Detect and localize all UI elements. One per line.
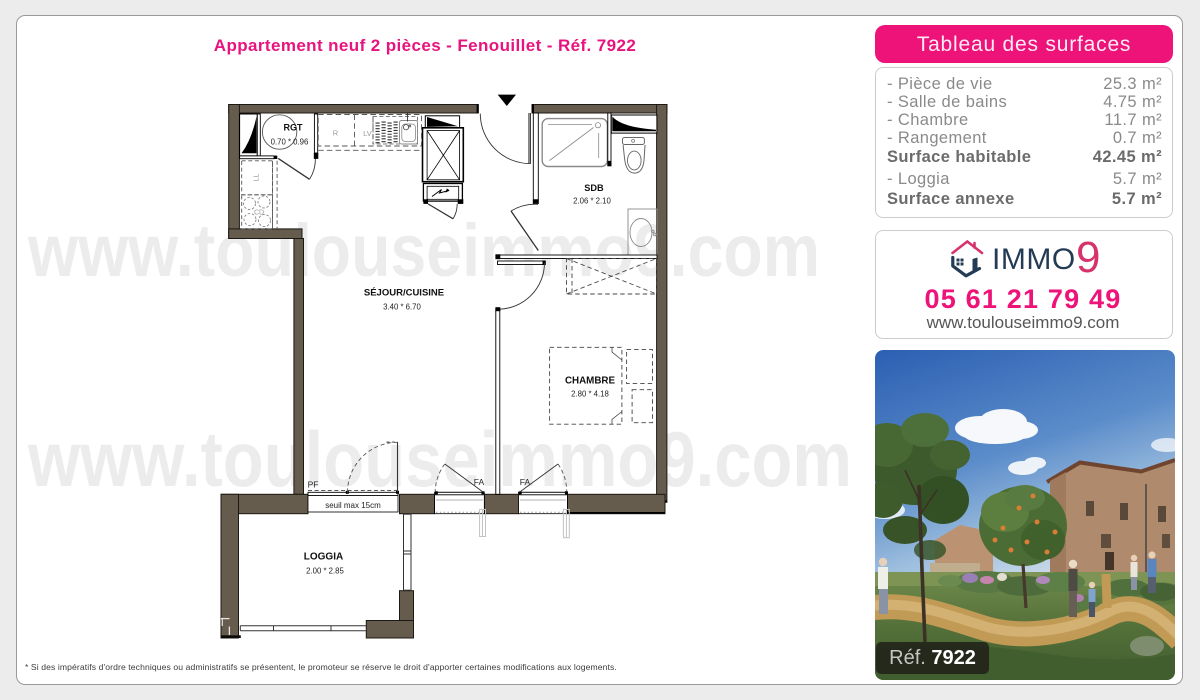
svg-text:2.00 * 2.85: 2.00 * 2.85 (306, 567, 344, 576)
svg-text:SÉJOUR/CUISINE: SÉJOUR/CUISINE (364, 288, 444, 299)
svg-text:CHAMBRE: CHAMBRE (565, 376, 616, 387)
svg-text:LOGGIA: LOGGIA (304, 552, 343, 563)
svg-text:SDB: SDB (584, 183, 604, 193)
svg-text:LV: LV (363, 129, 372, 138)
svg-text:RGT: RGT (284, 123, 304, 133)
svg-text:LL: LL (254, 174, 261, 182)
svg-text:0.70 * 0.96: 0.70 * 0.96 (271, 138, 309, 147)
svg-text:9: 9 (1076, 233, 1100, 282)
svg-text:seuil max 15cm: seuil max 15cm (325, 501, 381, 510)
svg-text:R: R (333, 129, 339, 138)
svg-text:3.40 * 6.70: 3.40 * 6.70 (383, 303, 421, 312)
svg-text:2.06 * 2.10: 2.06 * 2.10 (573, 197, 611, 206)
svg-text:FA: FA (474, 477, 485, 487)
svg-text:CD: CD (254, 210, 264, 217)
svg-text:2.80 * 4.18: 2.80 * 4.18 (571, 390, 609, 399)
svg-text:IMMO: IMMO (992, 243, 1076, 276)
svg-text:PF: PF (308, 480, 319, 490)
